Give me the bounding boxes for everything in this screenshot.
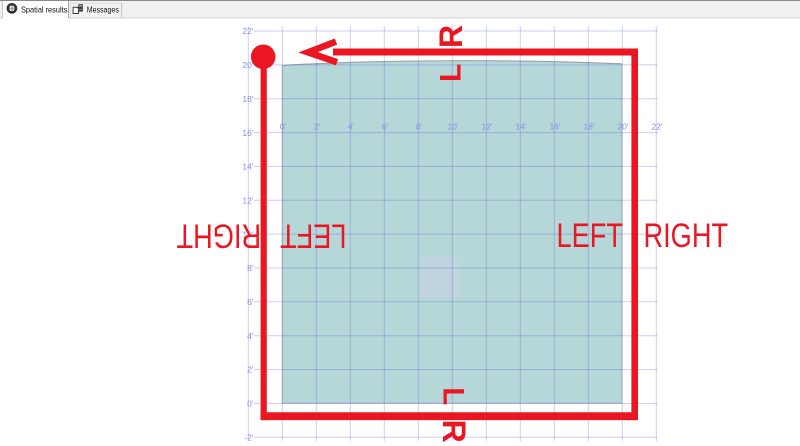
- svg-text:4': 4': [348, 121, 355, 131]
- svg-text:Spatial results: Spatial results: [21, 5, 67, 14]
- svg-text:18': 18': [242, 94, 253, 104]
- svg-text:6': 6': [382, 121, 389, 131]
- svg-text:14': 14': [242, 162, 253, 172]
- svg-text:-2': -2': [244, 432, 254, 442]
- svg-text:RIGHT: RIGHT: [176, 217, 261, 256]
- svg-text:L: L: [437, 387, 470, 405]
- svg-text:8': 8': [247, 263, 254, 273]
- svg-text:18': 18': [583, 121, 594, 131]
- svg-text:Messages: Messages: [87, 5, 119, 15]
- svg-text:22': 22': [651, 121, 662, 131]
- svg-text:RIGHT: RIGHT: [644, 216, 729, 255]
- svg-text:10': 10': [447, 121, 458, 131]
- svg-text:8': 8': [416, 121, 423, 131]
- svg-text:2': 2': [247, 365, 254, 375]
- svg-text:12': 12': [481, 121, 492, 131]
- svg-text:0': 0': [280, 121, 287, 131]
- svg-text:14': 14': [515, 121, 526, 131]
- svg-text:16': 16': [549, 121, 560, 131]
- svg-text:LEFT: LEFT: [557, 216, 624, 255]
- svg-text:LEFT: LEFT: [280, 217, 347, 256]
- svg-text:22': 22': [242, 26, 253, 36]
- svg-text:L: L: [434, 64, 467, 82]
- svg-text:16': 16': [242, 128, 253, 138]
- svg-text:0': 0': [247, 399, 254, 409]
- svg-text:2': 2': [314, 121, 321, 131]
- svg-text:R: R: [436, 420, 472, 443]
- svg-text:6': 6': [247, 297, 254, 307]
- svg-text:R: R: [433, 25, 469, 48]
- svg-text:4': 4': [247, 331, 254, 341]
- svg-text:20': 20': [617, 121, 628, 131]
- svg-text:12': 12': [242, 196, 253, 206]
